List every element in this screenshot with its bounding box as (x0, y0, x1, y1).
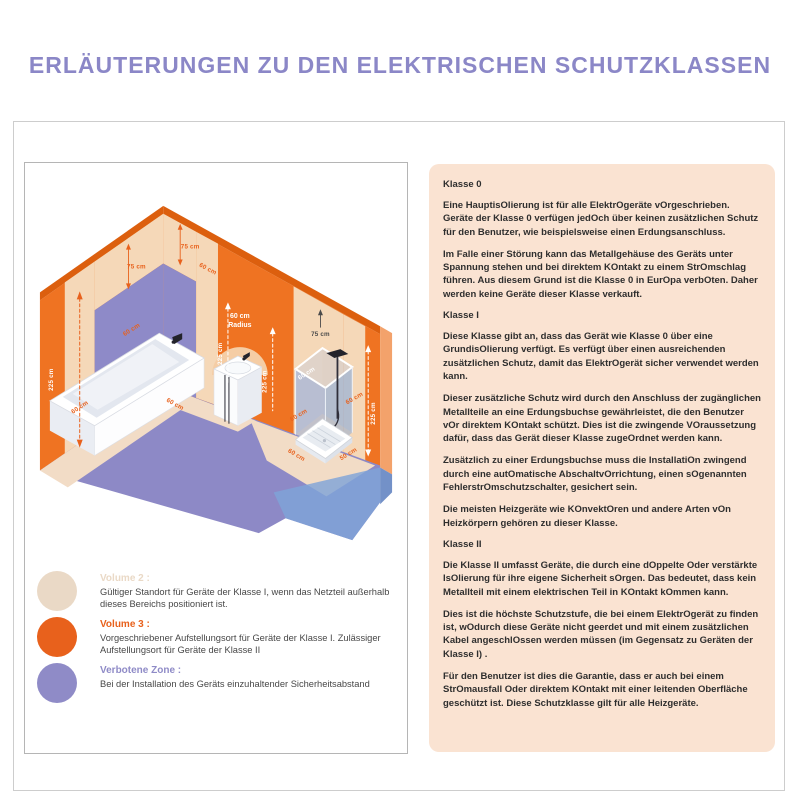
dim-label-radius-line2: Radius (228, 322, 251, 329)
legend-item: Volume 3 :Vorgeschriebener Aufstellungso… (37, 617, 397, 657)
info-paragraph: Für den Benutzer ist dies die Garantie, … (443, 670, 761, 710)
info-paragraph: Eine HauptisOlierung ist für alle Elektr… (443, 199, 761, 239)
legend-item-description: Bei der Installation des Geräts einzuhal… (100, 678, 370, 690)
legend-color-dot (37, 617, 77, 657)
legend-item-label: Volume 2 : (100, 573, 395, 584)
bathtub-faucet-base (172, 341, 175, 344)
legend-color-dot (37, 663, 77, 703)
basin-faucet-base (242, 358, 245, 361)
dim-label-75-shower: 75 cm (311, 331, 330, 338)
info-paragraph: Zusätzlich zu einer Erdungsbuchse muss d… (443, 454, 761, 494)
dim-label-75-left-strip: 75 cm (127, 264, 146, 271)
dim-label-225-left-wall: 225 cm (48, 368, 55, 391)
legend-item-description: Gültiger Standort für Geräte der Klasse … (100, 586, 395, 611)
dim-label-225-vanity-right: 225 cm (262, 370, 269, 393)
info-paragraph: Im Falle einer Störung kann das Metallge… (443, 248, 761, 301)
info-panel: Klasse 0Eine HauptisOlierung ist für all… (429, 164, 775, 752)
info-paragraph: Die meisten Heizgeräte wie KOnvektOren u… (443, 503, 761, 530)
tray-drain (323, 439, 326, 442)
legend-item-label: Volume 3 : (100, 619, 395, 630)
legend-color-dot (37, 571, 77, 611)
shower (296, 348, 353, 463)
legend-item-text: Volume 2 :Gültiger Standort für Geräte d… (100, 571, 395, 611)
content-card: 225 cm 60 cm 75 cm 75 cm 60 cm 60 cm 60 … (13, 121, 785, 791)
page: ERLÄUTERUNGEN ZU DEN ELEKTRISCHEN SCHUTZ… (0, 0, 800, 800)
legend-item-text: Volume 3 :Vorgeschriebener Aufstellungso… (100, 617, 395, 657)
info-paragraph: Dies ist die höchste Schutzstufe, die be… (443, 608, 761, 661)
dim-label-radius-line1: 60 cm (230, 313, 250, 320)
legend-item: Verbotene Zone :Bei der Installation des… (37, 663, 397, 703)
dim-label-225-vanity-left: 225 cm (217, 342, 224, 365)
legend-item-label: Verbotene Zone : (100, 665, 370, 676)
dim-label-75-right-strip: 75 cm (181, 244, 200, 251)
info-heading: Klasse I (443, 310, 761, 321)
right-wall-side-face (380, 326, 392, 474)
info-heading: Klasse 0 (443, 179, 761, 190)
legend-item-description: Vorgeschriebener Aufstellungsort für Ger… (100, 632, 395, 657)
page-title: ERLÄUTERUNGEN ZU DEN ELEKTRISCHEN SCHUTZ… (0, 52, 800, 79)
info-heading: Klasse II (443, 539, 761, 550)
diagram-panel: 225 cm 60 cm 75 cm 75 cm 60 cm 60 cm 60 … (24, 162, 408, 754)
info-paragraph: Dieser zusätzliche Schutz wird durch den… (443, 392, 761, 445)
info-paragraph: Die Klasse II umfasst Geräte, die durch … (443, 559, 761, 599)
washbasin (225, 362, 251, 374)
legend-item-text: Verbotene Zone :Bei der Installation des… (100, 663, 370, 690)
legend-item: Volume 2 :Gültiger Standort für Geräte d… (37, 571, 397, 611)
bathroom-diagram: 225 cm 60 cm 75 cm 75 cm 60 cm 60 cm 60 … (25, 163, 407, 567)
dim-label-225-right-edge: 225 cm (370, 402, 377, 425)
legend: Volume 2 :Gültiger Standort für Geräte d… (25, 567, 407, 703)
info-paragraph: Diese Klasse gibt an, dass das Gerät wie… (443, 330, 761, 383)
